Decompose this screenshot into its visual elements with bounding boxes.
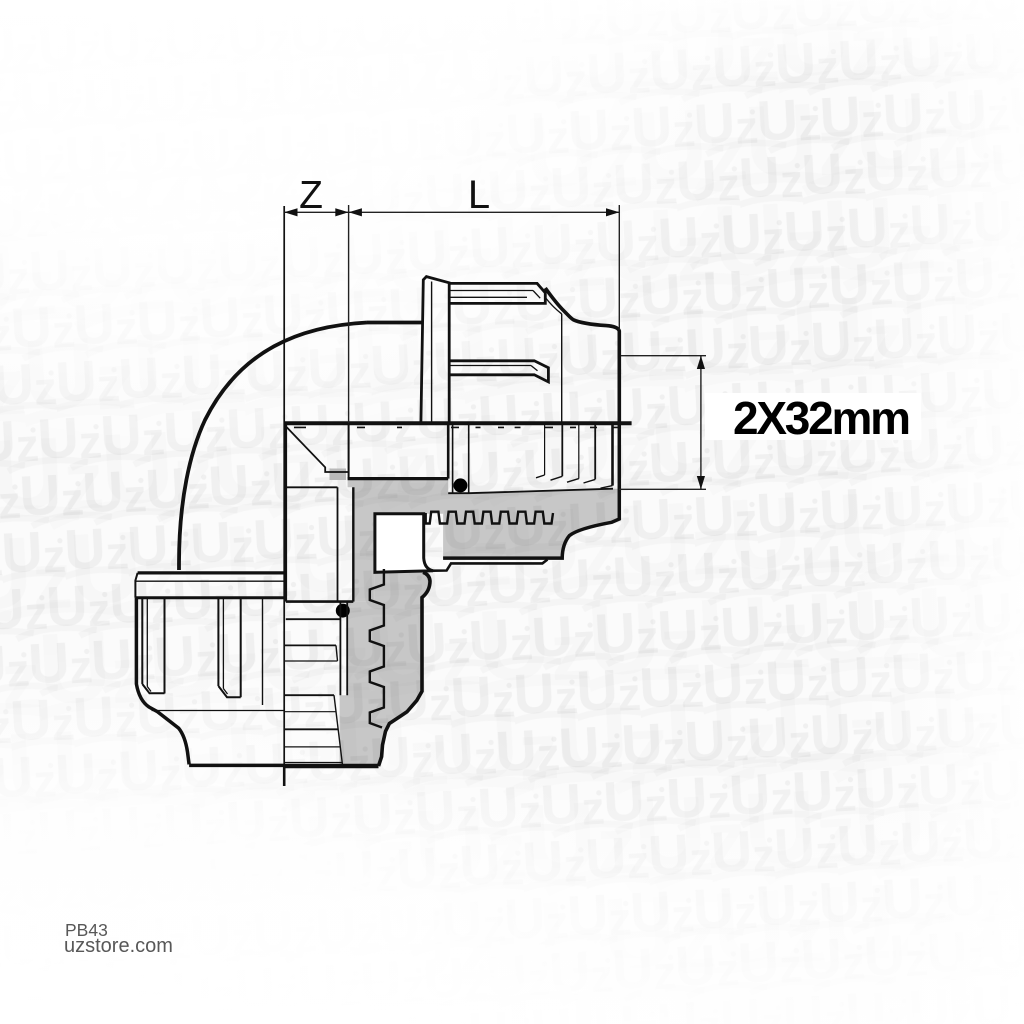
svg-text:Z: Z (299, 174, 323, 217)
svg-text:L: L (468, 173, 490, 217)
svg-text:uzstore.com: uzstore.com (64, 935, 173, 957)
svg-text:2X32mm: 2X32mm (733, 392, 911, 444)
